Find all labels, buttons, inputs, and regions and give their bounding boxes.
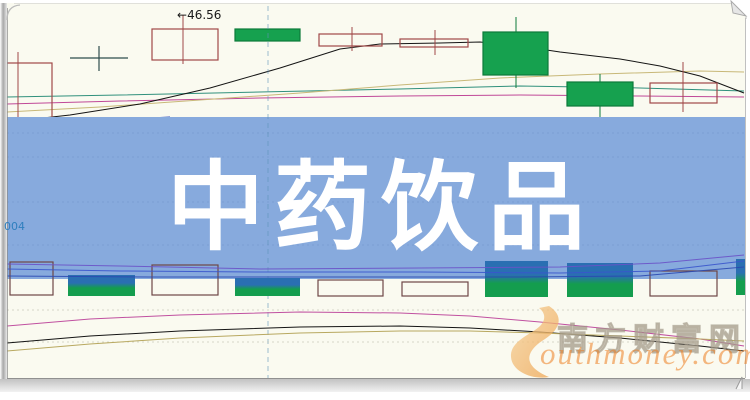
left-arrow-icon: ← (177, 8, 187, 22)
screenshot-page: 中药饮品 ←46.56 004 南方财富网 outhmoney.com (0, 0, 750, 400)
banner-title: 中药饮品 (7, 117, 745, 279)
price-value: 46.56 (187, 8, 221, 22)
code-label: 004 (4, 221, 25, 233)
price-label: ←46.56 (177, 8, 221, 22)
volume-bar-green (235, 278, 300, 296)
